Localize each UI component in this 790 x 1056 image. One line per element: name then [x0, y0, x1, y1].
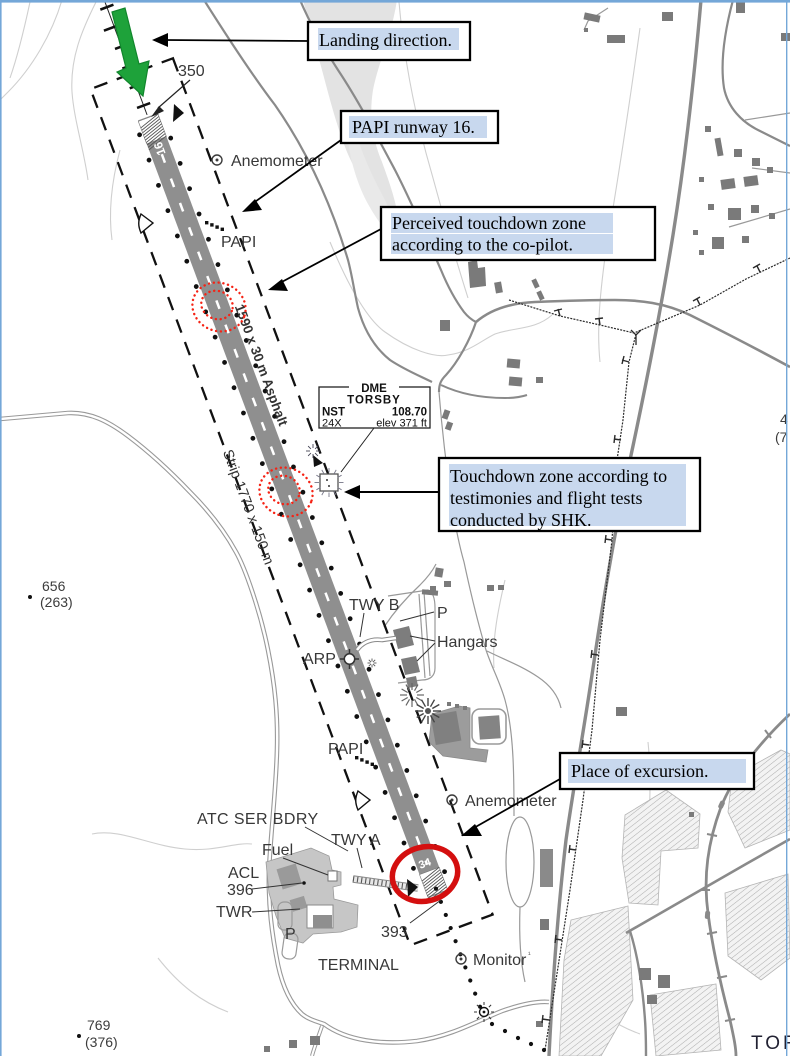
svg-text:PAPI runway 16.: PAPI runway 16.	[352, 117, 475, 137]
svg-text:DME: DME	[361, 383, 387, 395]
svg-text:Fuel: Fuel	[262, 842, 293, 859]
svg-text:testimonies and flight tests: testimonies and flight tests	[450, 488, 642, 508]
svg-text:Landing direction.: Landing direction.	[319, 30, 452, 50]
svg-text:ARP: ARP	[303, 651, 336, 668]
svg-text:PAPI: PAPI	[221, 234, 256, 251]
svg-text:ATC SER BDRY: ATC SER BDRY	[197, 811, 319, 828]
svg-text:TWY A: TWY A	[331, 832, 381, 849]
svg-text:Place of excursion.: Place of excursion.	[571, 761, 708, 781]
svg-text:TOR: TOR	[751, 1033, 790, 1054]
svg-text:according to the co-pilot.: according to the co-pilot.	[392, 235, 573, 255]
svg-text:(7: (7	[775, 429, 788, 445]
svg-text:769: 769	[87, 1017, 111, 1033]
svg-text:Perceived touchdown zone: Perceived touchdown zone	[392, 213, 586, 233]
svg-text:TWY B: TWY B	[349, 597, 399, 614]
svg-text:Monitor: Monitor	[473, 952, 527, 969]
svg-text:conducted by SHK.: conducted by SHK.	[450, 510, 591, 530]
svg-text:P: P	[285, 926, 296, 943]
svg-text:TWR: TWR	[216, 904, 252, 921]
svg-text:393: 393	[381, 924, 408, 941]
svg-text:(263): (263)	[40, 594, 73, 610]
svg-text:Touchdown zone according to: Touchdown zone according to	[450, 466, 667, 486]
svg-text:656: 656	[42, 578, 66, 594]
svg-text:24X: 24X	[322, 418, 342, 430]
svg-text:¹: ¹	[528, 950, 531, 959]
svg-text:Hangars: Hangars	[437, 634, 497, 651]
svg-text:Anemometer: Anemometer	[231, 153, 323, 170]
svg-text:PAPI: PAPI	[328, 741, 363, 758]
svg-text:396: 396	[227, 882, 254, 899]
svg-text:P: P	[437, 605, 448, 622]
svg-text:TORSBY: TORSBY	[347, 395, 401, 407]
svg-text:(376): (376)	[85, 1034, 118, 1050]
svg-text:TERMINAL: TERMINAL	[318, 957, 399, 974]
svg-text:elev 371 ft: elev 371 ft	[376, 418, 427, 430]
svg-text:ACL: ACL	[228, 865, 259, 882]
svg-text:350: 350	[178, 63, 205, 80]
